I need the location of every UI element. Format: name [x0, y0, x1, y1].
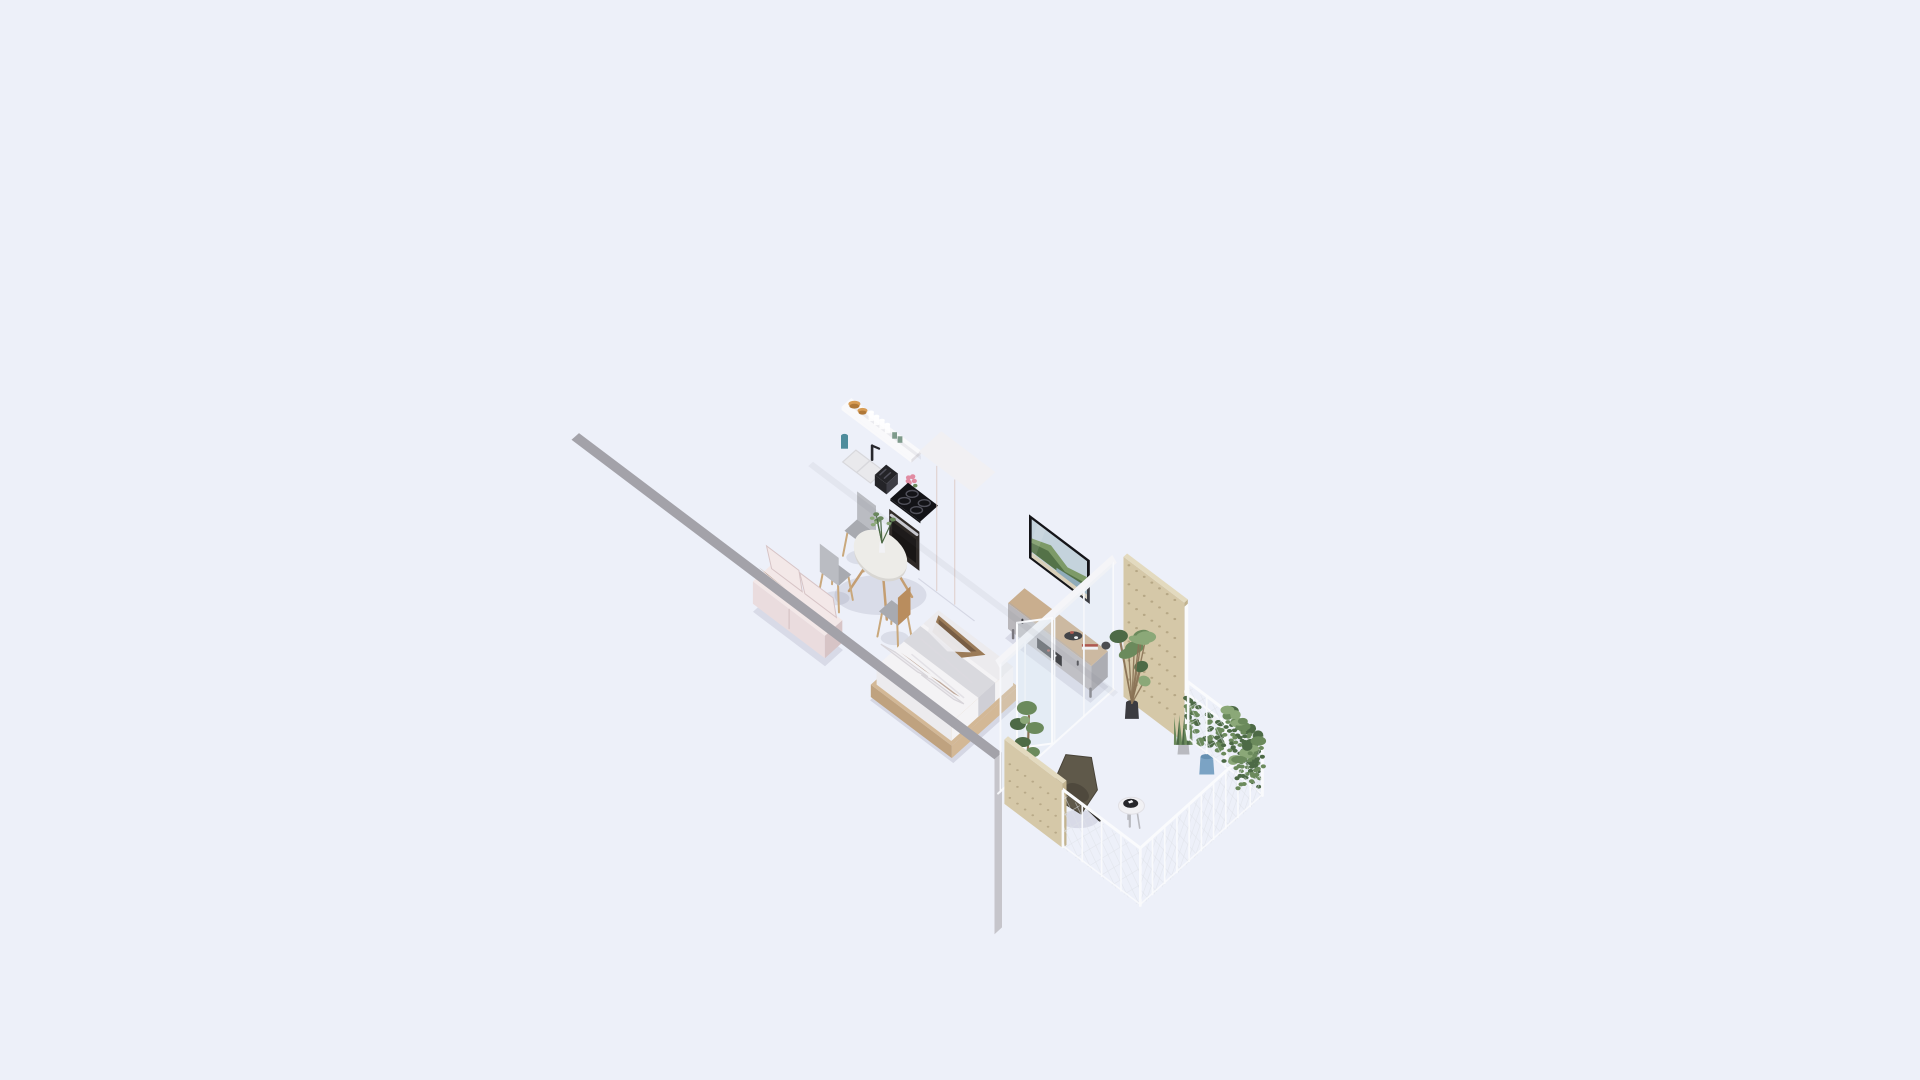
apartment-isometric-render — [0, 0, 1920, 1080]
balcony-side-table — [1118, 797, 1144, 828]
floor-plan-stage — [0, 0, 1920, 1080]
